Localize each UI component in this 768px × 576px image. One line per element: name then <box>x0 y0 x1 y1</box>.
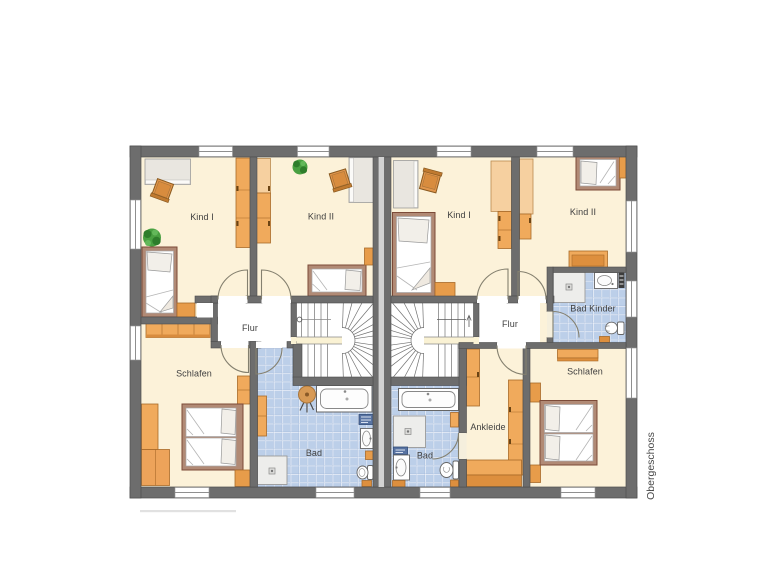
svg-text:Bad: Bad <box>417 451 433 461</box>
svg-text:Flur: Flur <box>242 323 258 333</box>
svg-text:Kind II: Kind II <box>308 212 334 222</box>
svg-text:Kind I: Kind I <box>447 210 471 220</box>
svg-text:Bad: Bad <box>306 448 322 458</box>
svg-text:Obergeschoss: Obergeschoss <box>645 432 657 500</box>
svg-text:Schlafen: Schlafen <box>567 367 603 377</box>
svg-text:Bad Kinder: Bad Kinder <box>570 304 616 314</box>
svg-text:Kind I: Kind I <box>190 212 214 222</box>
svg-text:Kind II: Kind II <box>570 207 596 217</box>
svg-text:Flur: Flur <box>502 319 518 329</box>
svg-text:Schlafen: Schlafen <box>176 369 212 379</box>
svg-text:Ankleide: Ankleide <box>470 422 505 432</box>
